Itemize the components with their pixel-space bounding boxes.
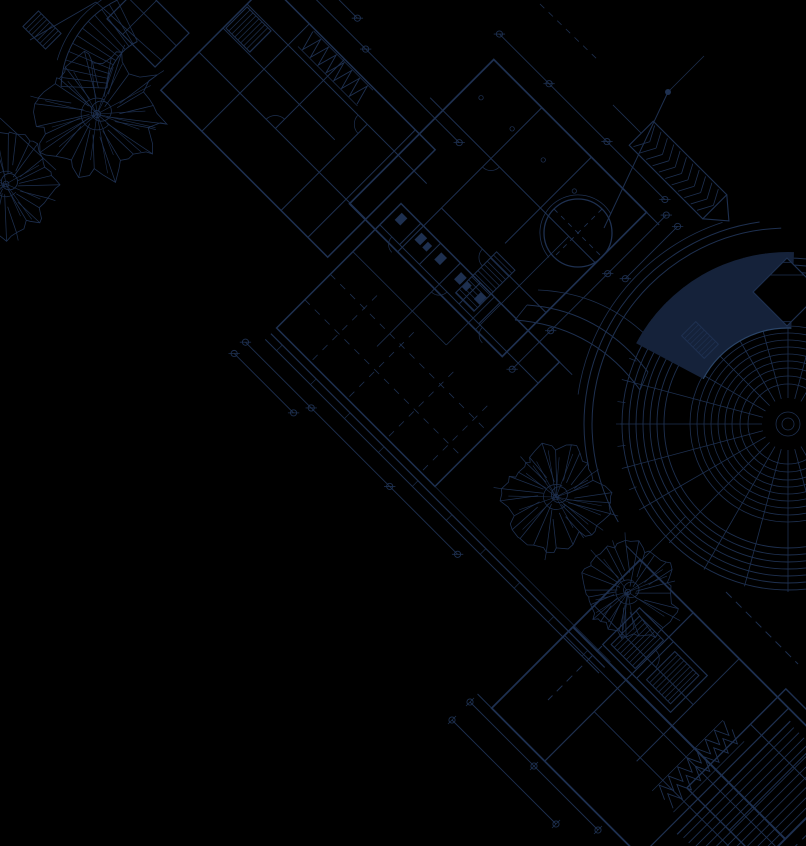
- background: [0, 0, 806, 846]
- blueprint-canvas: [0, 0, 806, 846]
- blueprint-svg: [0, 0, 806, 846]
